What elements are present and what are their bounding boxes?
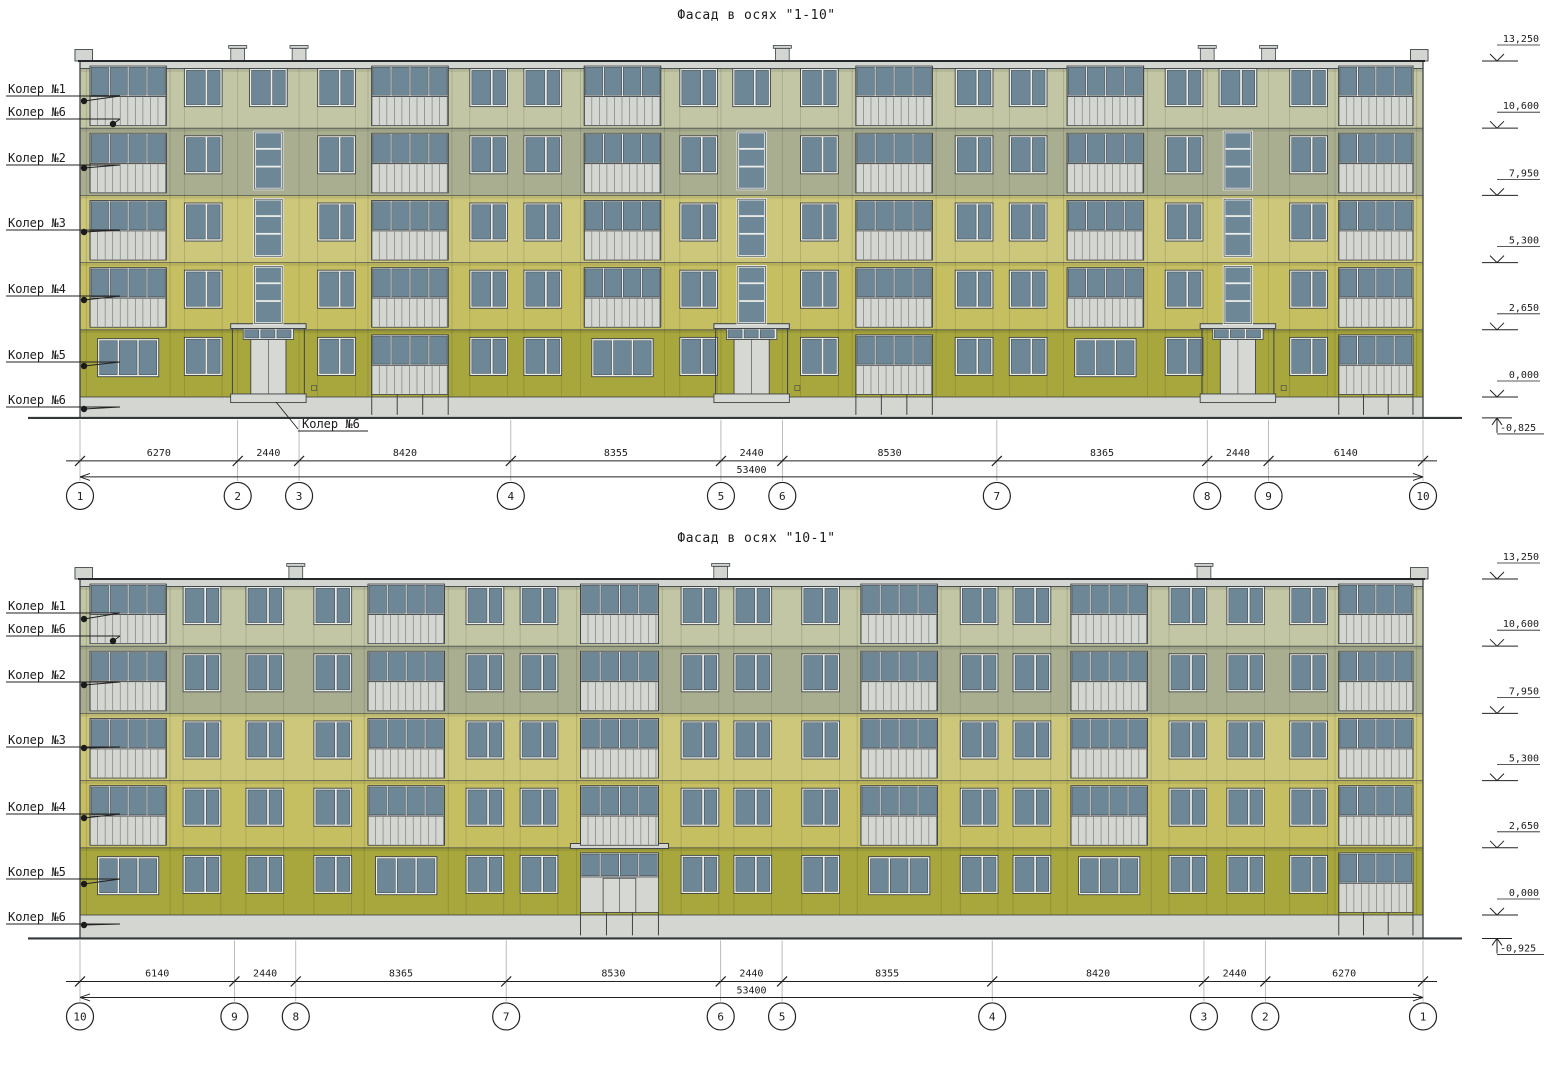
color-label: Колер №6: [8, 393, 66, 407]
loggia-pane: [604, 67, 621, 95]
loggia-pane: [604, 202, 621, 230]
window-pane: [206, 588, 219, 622]
window-pane: [1015, 857, 1034, 891]
loggia-pane: [426, 653, 443, 681]
window-pane: [683, 588, 702, 622]
window-pane: [978, 70, 991, 104]
elevation-value: 7,950: [1509, 686, 1539, 697]
window-pane: [1313, 272, 1326, 306]
axis-number: 10: [1416, 490, 1429, 503]
window-pane: [547, 70, 560, 104]
loggia-pane: [1377, 653, 1394, 681]
loggia-pane: [900, 585, 917, 613]
window-pane: [208, 70, 221, 104]
loggia-pane: [1358, 336, 1375, 364]
stair-window-rail: [256, 166, 281, 168]
window-pane: [248, 857, 267, 891]
window-pane: [825, 656, 838, 690]
window-pane: [468, 723, 487, 757]
parapet-strip: [80, 61, 1423, 69]
window-pane: [1167, 70, 1186, 104]
window-pane: [468, 588, 487, 622]
loggia-pane: [895, 336, 912, 364]
loggia-pane: [862, 787, 879, 815]
roof-vent-cap: [229, 46, 247, 49]
elevation-arrow: [1490, 572, 1497, 579]
elevation-arrow: [1490, 323, 1497, 330]
loggia-pane: [1106, 269, 1123, 297]
loggia-parapet-slats: [584, 96, 660, 125]
loggia-pane: [129, 653, 146, 681]
loggia-pane: [129, 135, 146, 163]
window-pane: [978, 205, 991, 239]
window-pane: [378, 859, 396, 893]
window-pane: [543, 656, 556, 690]
loggia-pane: [388, 585, 405, 613]
foundation-arrow: [1492, 418, 1497, 425]
window-pane: [1188, 205, 1201, 239]
loggia-pane: [1091, 720, 1108, 748]
loggia-pane: [623, 202, 640, 230]
elevation-arrow: [1497, 323, 1504, 330]
window-pane: [185, 723, 204, 757]
leader-dot: [81, 165, 87, 171]
window-pane: [824, 70, 837, 104]
window-pane: [185, 857, 204, 891]
stair-window-rail: [256, 300, 281, 302]
window-pane: [489, 588, 502, 622]
window-pane: [248, 588, 267, 622]
window-pane: [1250, 588, 1263, 622]
entrance-porch-step: [1200, 394, 1275, 403]
window-pane: [1292, 70, 1311, 104]
window-pane: [825, 790, 838, 824]
window-pane: [1096, 341, 1114, 375]
window-pane: [803, 205, 822, 239]
window-pane: [703, 339, 716, 373]
loggia-pane: [642, 202, 659, 230]
window-pane: [757, 656, 770, 690]
loggia-pane: [148, 787, 165, 815]
loggia-pane: [895, 269, 912, 297]
window-pane: [341, 339, 354, 373]
dimension-text: 2440: [739, 968, 763, 979]
loggia-pane: [129, 67, 146, 95]
stair-window-rail: [739, 148, 764, 150]
loggia-pane: [430, 135, 447, 163]
loggia-parapet-slats: [1339, 298, 1413, 327]
dim-arrow: [1413, 994, 1423, 998]
loggia-pane: [1358, 67, 1375, 95]
elevation-arrow: [1490, 121, 1497, 128]
window-pane: [1188, 272, 1201, 306]
window-pane: [736, 656, 755, 690]
window-pane: [703, 272, 716, 306]
elevation-value: 0,000: [1509, 888, 1539, 899]
axis-number: 4: [508, 490, 515, 503]
window-pane: [1080, 859, 1098, 893]
window-pane: [472, 272, 491, 306]
window-pane: [1313, 790, 1326, 824]
loggia-parapet-slats: [861, 749, 937, 778]
dim-arrow: [80, 477, 90, 481]
loggia-pane: [1340, 854, 1357, 882]
window-pane: [1015, 656, 1034, 690]
window-pane: [417, 859, 435, 893]
window-pane: [704, 723, 717, 757]
loggia-pane: [388, 720, 405, 748]
loggia-pane: [900, 787, 917, 815]
loggia-pane: [620, 585, 638, 613]
foundation-arrow: [1492, 938, 1497, 945]
elevation-arrow: [1490, 774, 1497, 781]
window-pane: [100, 859, 118, 893]
window-pane: [1313, 138, 1326, 172]
loggia-pane: [1358, 135, 1375, 163]
loggia-pane: [857, 67, 874, 95]
loggia-pane: [895, 135, 912, 163]
window-pane: [206, 723, 219, 757]
window-pane: [1188, 339, 1201, 373]
loggia-pane: [392, 202, 409, 230]
loggia-pane: [1340, 336, 1357, 364]
loggia-pane: [407, 720, 424, 748]
window-pane: [1188, 138, 1201, 172]
porch-pane: [582, 854, 600, 876]
loggia-pane: [604, 135, 621, 163]
loggia-pane: [1377, 135, 1394, 163]
axis-number: 1: [1420, 1010, 1427, 1023]
loggia-pane: [642, 67, 659, 95]
color-label: Колер №3: [8, 216, 66, 230]
window-pane: [1292, 272, 1311, 306]
window-pane: [1229, 857, 1248, 891]
window-pane: [1250, 857, 1263, 891]
loggia-parapet-slats: [1071, 682, 1147, 711]
window-pane: [1015, 790, 1034, 824]
dimension-text: 8365: [389, 968, 413, 979]
window-pane: [824, 138, 837, 172]
color-label: Колер №6: [8, 910, 66, 924]
window-pane: [1011, 205, 1030, 239]
loggia-parapet-slats: [1071, 816, 1147, 845]
dimension-text: 8530: [878, 448, 902, 459]
window-pane: [273, 70, 286, 104]
stair-window-rail: [256, 282, 281, 284]
window-pane: [1250, 656, 1263, 690]
dimension-text: 8355: [875, 968, 899, 979]
elevation-value: 13,250: [1503, 34, 1539, 45]
window-pane: [1242, 70, 1255, 104]
loggia-pane: [411, 269, 428, 297]
stair-window: [255, 199, 283, 256]
loggia-parapet-slats: [856, 164, 932, 193]
leader-dot: [81, 745, 87, 751]
leader-dot: [81, 229, 87, 235]
window-pane: [983, 723, 996, 757]
window-pane: [252, 70, 271, 104]
stair-window: [1224, 266, 1252, 323]
stair-window-rail: [739, 166, 764, 168]
foundation-value: -0,825: [1500, 423, 1536, 434]
loggia-parapet-slats: [90, 164, 166, 193]
window-pane: [139, 341, 157, 375]
loggia-pane: [1358, 202, 1375, 230]
loggia-parapet-slats: [372, 365, 448, 394]
window-pane: [1036, 790, 1049, 824]
loggia-pane: [1340, 720, 1357, 748]
window-pane: [1250, 790, 1263, 824]
building-elevation-drawing: 6270244084208355244085308365244061405340…: [0, 0, 1545, 1083]
window-pane: [1292, 205, 1311, 239]
loggia-pane: [1068, 67, 1085, 95]
elevation-arrow: [1497, 908, 1504, 915]
window-pane: [978, 272, 991, 306]
loggia-pane: [582, 787, 600, 815]
color-label: Колер №3: [8, 733, 66, 747]
elevation-value: 2,650: [1509, 303, 1539, 314]
belt-shadow: [80, 713, 1423, 716]
loggia-pane: [1340, 135, 1357, 163]
loggia-pane: [1087, 202, 1104, 230]
loggia-pane: [1358, 854, 1375, 882]
loggia-pane: [640, 720, 658, 748]
elevation-value: 13,250: [1503, 552, 1539, 563]
axis-number: 8: [1204, 490, 1211, 503]
window-pane: [472, 205, 491, 239]
loggia-pane: [623, 67, 640, 95]
loggia-pane: [862, 720, 879, 748]
loggia-pane: [1377, 336, 1394, 364]
dimension-text: 2440: [1223, 968, 1247, 979]
loggia-pane: [129, 202, 146, 230]
roof-vent-cap: [287, 564, 305, 567]
window-pane: [703, 138, 716, 172]
loggia-pane: [1395, 336, 1412, 364]
loggia-parapet-slats: [1339, 883, 1413, 912]
window-pane: [185, 656, 204, 690]
window-pane: [1229, 790, 1248, 824]
loggia-pane: [110, 720, 127, 748]
stair-window-rail: [1226, 233, 1251, 235]
window-pane: [983, 588, 996, 622]
window-pane: [543, 790, 556, 824]
leader-dot: [81, 616, 87, 622]
window-pane: [1036, 723, 1049, 757]
loggia-pane: [369, 720, 386, 748]
loggia-pane: [1068, 202, 1085, 230]
loggia-pane: [1110, 585, 1127, 613]
loggia-pane: [1340, 653, 1357, 681]
loggia-pane: [1395, 67, 1412, 95]
stair-window: [255, 266, 283, 323]
entrance-porch-step: [231, 394, 306, 403]
loggia-parapet-slats: [584, 164, 660, 193]
loggia-pane: [1377, 787, 1394, 815]
loggia-pane: [857, 202, 874, 230]
dimension-text: 8420: [1086, 968, 1110, 979]
window-pane: [1032, 272, 1045, 306]
window-pane: [703, 70, 716, 104]
loggia-pane: [604, 269, 621, 297]
loggia-pane: [1340, 787, 1357, 815]
stair-window-rail: [256, 148, 281, 150]
window-pane: [983, 656, 996, 690]
window-pane: [1229, 656, 1248, 690]
loggia-pane: [91, 653, 108, 681]
loggia-pane: [900, 720, 917, 748]
window-pane: [703, 205, 716, 239]
window-pane: [248, 723, 267, 757]
loggia-pane: [1340, 67, 1357, 95]
loggia-parapet-slats: [861, 682, 937, 711]
loggia-pane: [426, 585, 443, 613]
window-pane: [614, 341, 632, 375]
loggia-pane: [91, 269, 108, 297]
color-label: Колер №5: [8, 348, 66, 362]
loggia-pane: [1377, 269, 1394, 297]
belt-shadow: [80, 848, 1423, 851]
window-pane: [206, 857, 219, 891]
axis-number: 2: [234, 490, 241, 503]
window-pane: [526, 205, 545, 239]
axis-number: 8: [292, 1010, 299, 1023]
leader-dot: [81, 922, 87, 928]
window-pane: [1192, 723, 1205, 757]
loggia-pane: [91, 787, 108, 815]
roof-vent: [775, 48, 789, 61]
elevation-arrow: [1497, 188, 1504, 195]
window-pane: [522, 656, 541, 690]
roof-vent: [231, 48, 245, 61]
stair-window-rail: [739, 300, 764, 302]
stair-window: [738, 266, 766, 323]
window-pane: [804, 656, 823, 690]
loggia-pane: [373, 336, 390, 364]
window-pane: [803, 70, 822, 104]
window-pane: [320, 339, 339, 373]
loggia-pane: [407, 585, 424, 613]
elevation-arrow: [1497, 841, 1504, 848]
loggia-pane: [881, 585, 898, 613]
window-pane: [1192, 790, 1205, 824]
annotation-text: Колер №6: [302, 417, 360, 431]
axis-number: 9: [231, 1010, 238, 1023]
window-pane: [736, 588, 755, 622]
window-pane: [825, 723, 838, 757]
dimension-text: 8365: [1090, 448, 1114, 459]
loggia-pane: [1358, 787, 1375, 815]
loggia-pane: [373, 135, 390, 163]
window-pane: [186, 138, 205, 172]
window-pane: [208, 272, 221, 306]
loggia-pane: [1129, 787, 1146, 815]
window-pane: [957, 205, 976, 239]
loggia-pane: [148, 67, 165, 95]
loggia-parapet-slats: [90, 749, 166, 778]
window-pane: [683, 790, 702, 824]
loggia-pane: [919, 720, 936, 748]
window-pane: [1313, 656, 1326, 690]
window-pane: [547, 138, 560, 172]
window-pane: [804, 857, 823, 891]
window-pane: [682, 70, 701, 104]
loggia-pane: [623, 269, 640, 297]
axis-number: 9: [1265, 490, 1272, 503]
window-pane: [736, 723, 755, 757]
window-pane: [186, 70, 205, 104]
window-pane: [493, 272, 506, 306]
loggia-pane: [895, 202, 912, 230]
window-pane: [1192, 656, 1205, 690]
window-pane: [493, 138, 506, 172]
elevation-arrow: [1490, 841, 1497, 848]
roof-vent-cap: [773, 46, 791, 49]
window-pane: [337, 588, 350, 622]
dimension-text: 2440: [256, 448, 280, 459]
loggia-pane: [91, 720, 108, 748]
loggia-pane: [1091, 585, 1108, 613]
window-pane: [186, 272, 205, 306]
window-pane: [1313, 205, 1326, 239]
loggia-pane: [1358, 720, 1375, 748]
loggia-pane: [1340, 585, 1357, 613]
elevation-arrow: [1490, 390, 1497, 397]
window-pane: [803, 272, 822, 306]
loggia-pane: [585, 135, 602, 163]
window-pane: [910, 859, 928, 893]
window-pane: [1011, 339, 1030, 373]
window-pane: [186, 205, 205, 239]
loggia-pane: [1377, 720, 1394, 748]
loggia-pane: [411, 67, 428, 95]
axis-number: 6: [717, 1010, 724, 1023]
window-pane: [341, 272, 354, 306]
window-pane: [337, 857, 350, 891]
window-pane: [1188, 70, 1201, 104]
loggia-pane: [426, 720, 443, 748]
loggia-parapet-slats: [1067, 96, 1143, 125]
window-pane: [1292, 339, 1311, 373]
elevation-arrow: [1497, 54, 1504, 61]
loggia-pane: [1358, 269, 1375, 297]
loggia-pane: [148, 269, 165, 297]
axis-number: 5: [718, 490, 725, 503]
window-pane: [825, 588, 838, 622]
loggia-pane: [407, 787, 424, 815]
window-pane: [1032, 339, 1045, 373]
loggia-parapet-slats: [584, 298, 660, 327]
stair-window-rail: [256, 215, 281, 217]
loggia-pane: [601, 585, 619, 613]
roof-vent: [1262, 48, 1276, 61]
window-pane: [825, 857, 838, 891]
window-pane: [468, 857, 487, 891]
loggia-parapet-slats: [368, 614, 444, 643]
loggia-pane: [1125, 135, 1142, 163]
loggia-parapet-slats: [1339, 231, 1413, 260]
loggia-pane: [430, 67, 447, 95]
window-pane: [1171, 588, 1190, 622]
window-pane: [757, 723, 770, 757]
window-pane: [1015, 588, 1034, 622]
loggia-pane: [110, 135, 127, 163]
foundation-value: -0,925: [1500, 943, 1536, 954]
color-label: Колер №1: [8, 82, 66, 96]
loggia-pane: [110, 202, 127, 230]
window-pane: [1171, 857, 1190, 891]
window-pane: [522, 790, 541, 824]
